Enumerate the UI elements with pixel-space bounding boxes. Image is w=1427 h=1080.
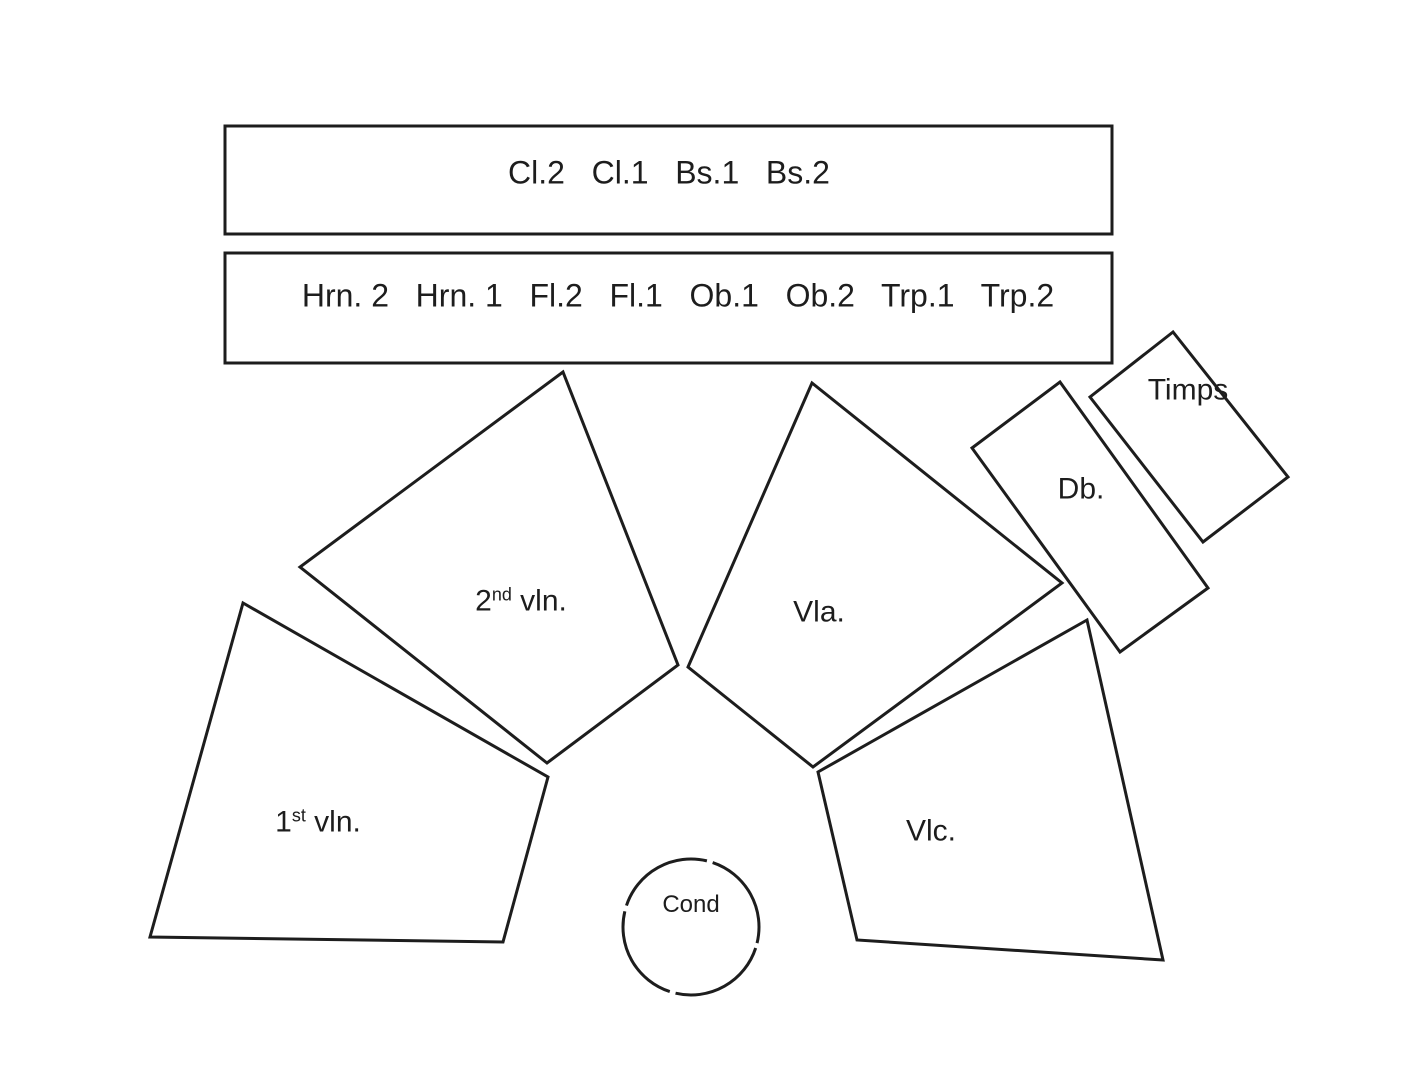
first-violins-label-rest: vln.	[306, 806, 361, 839]
second-violins-label-rest: vln.	[512, 585, 567, 618]
woodwind-row-1-label: Cl.2 Cl.1 Bs.1 Bs.2	[508, 155, 830, 190]
first-violins-label-base: 1	[275, 806, 292, 839]
double-basses-label: Db.	[1058, 473, 1105, 506]
violas-label: Vla.	[793, 596, 845, 629]
woodwind-brass-row-2-label: Hrn. 2 Hrn. 1 Fl.2 Fl.1 Ob.1 Ob.2 Trp.1 …	[302, 278, 1054, 313]
conductor-podium-circle	[605, 841, 776, 1012]
conductor-label: Cond	[662, 892, 719, 918]
first-violins-label: 1st vln.	[275, 806, 361, 839]
orchestra-seating-diagram: Cl.2 Cl.1 Bs.1 Bs.2 Hrn. 2 Hrn. 1 Fl.2 F…	[0, 0, 1427, 1080]
timpani-label: Timps	[1148, 374, 1229, 407]
second-violins-label-base: 2	[475, 585, 492, 618]
second-violins-label-ordinal: nd	[492, 585, 512, 605]
second-violins-label: 2nd vln.	[475, 585, 567, 618]
cellos-label: Vlc.	[906, 815, 956, 848]
first-violins-label-ordinal: st	[292, 806, 306, 826]
